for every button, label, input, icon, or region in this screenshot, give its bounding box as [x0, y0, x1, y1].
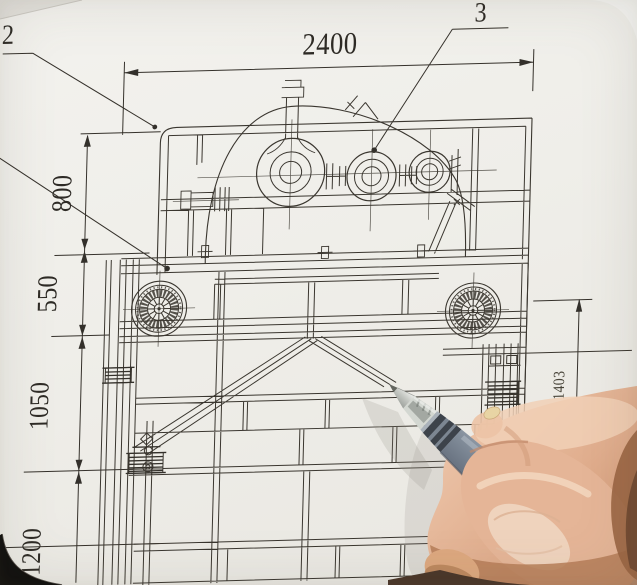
bottom-left-dark-corner [0, 534, 62, 585]
photo-of-engineering-drawing: 2400 3 2 800 550 1050 1200 1403 [0, 0, 637, 585]
photo-edges [0, 0, 637, 585]
top-right-corner [592, 0, 637, 48]
